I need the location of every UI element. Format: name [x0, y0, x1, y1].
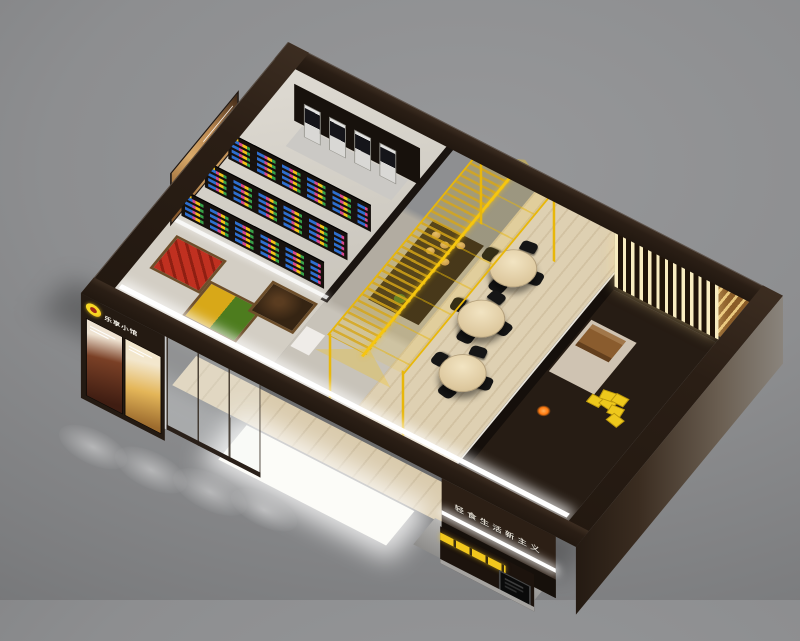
brand-logo-icon	[86, 301, 101, 320]
pier-poster-food	[125, 338, 162, 435]
render-canvas: { "scene": { "type": "3d-isometric-inter…	[0, 0, 800, 600]
logo-inner-mark	[90, 306, 97, 314]
pier-poster-drink	[86, 318, 123, 415]
